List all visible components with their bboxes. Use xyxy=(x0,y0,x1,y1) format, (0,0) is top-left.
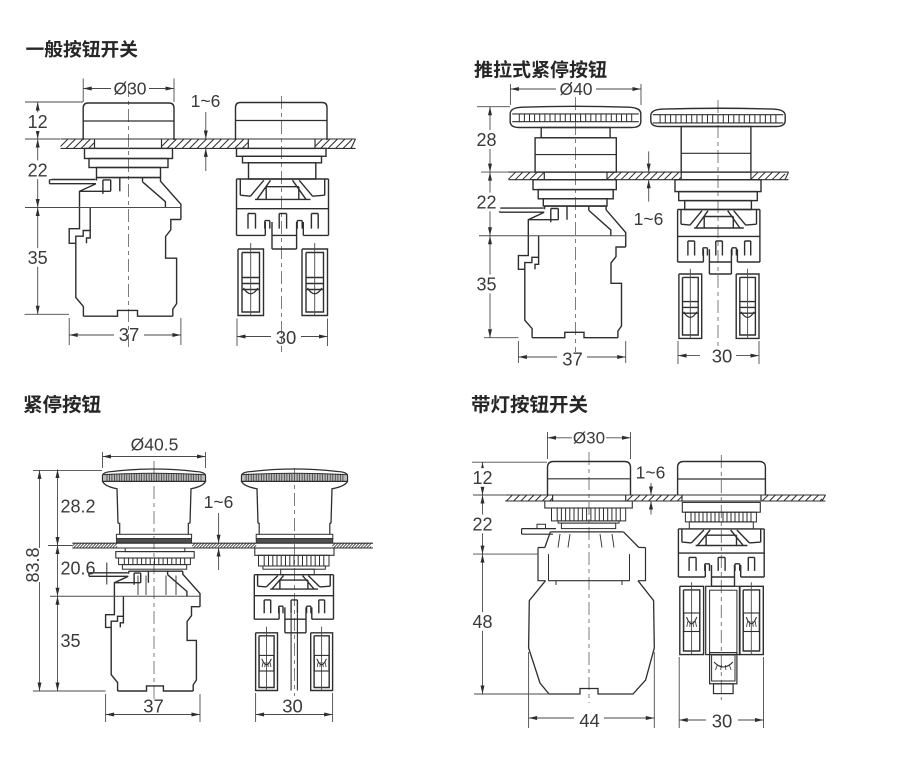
svg-text:Ø40: Ø40 xyxy=(559,79,592,99)
svg-text:30: 30 xyxy=(712,711,733,732)
svg-text:44: 44 xyxy=(579,710,600,731)
svg-text:37: 37 xyxy=(562,349,583,370)
svg-text:20.6: 20.6 xyxy=(61,559,96,579)
svg-text:30: 30 xyxy=(276,327,297,348)
svg-text:35: 35 xyxy=(28,248,48,268)
svg-text:Ø40.5: Ø40.5 xyxy=(131,435,179,455)
svg-text:22: 22 xyxy=(476,192,496,212)
svg-text:22: 22 xyxy=(28,160,48,180)
svg-text:28.2: 28.2 xyxy=(61,497,96,517)
svg-text:12: 12 xyxy=(28,112,48,132)
svg-text:1~6: 1~6 xyxy=(204,492,234,512)
svg-text:1~6: 1~6 xyxy=(636,463,666,483)
svg-text:37: 37 xyxy=(143,696,164,717)
svg-text:35: 35 xyxy=(61,631,81,651)
svg-text:30: 30 xyxy=(282,696,303,717)
svg-text:1~6: 1~6 xyxy=(634,209,664,229)
svg-text:Ø30: Ø30 xyxy=(113,79,146,99)
svg-text:28: 28 xyxy=(476,130,496,150)
svg-text:83.8: 83.8 xyxy=(23,547,43,582)
svg-text:1~6: 1~6 xyxy=(191,91,221,111)
svg-text:22: 22 xyxy=(472,514,492,534)
svg-text:37: 37 xyxy=(119,324,140,345)
svg-text:35: 35 xyxy=(476,274,496,294)
svg-text:12: 12 xyxy=(472,468,492,488)
svg-text:48: 48 xyxy=(472,612,492,632)
svg-text:30: 30 xyxy=(712,346,733,367)
svg-text:Ø30: Ø30 xyxy=(573,429,605,448)
